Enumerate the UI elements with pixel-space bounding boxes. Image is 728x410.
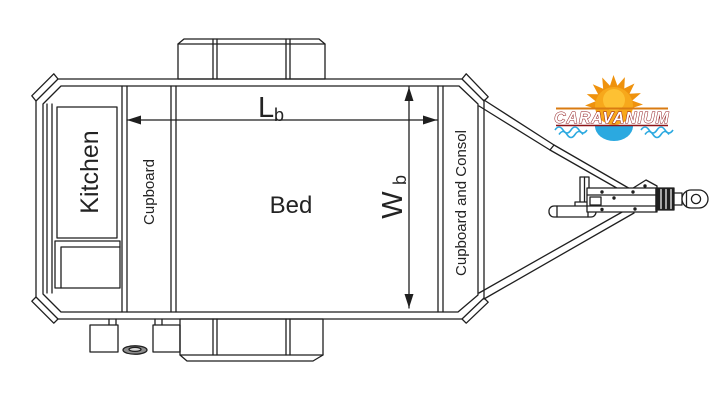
coupling-channel bbox=[587, 188, 656, 212]
arrowhead-up bbox=[405, 87, 414, 101]
dimension-length-label: L b bbox=[258, 92, 284, 125]
bed-label: Bed bbox=[270, 192, 313, 219]
cupboard-label: Cupboard bbox=[141, 159, 158, 225]
corner-bevel-bottom-right bbox=[462, 298, 488, 323]
support-box-left bbox=[90, 319, 118, 352]
wheelbox-top bbox=[178, 39, 325, 79]
corner-bevel-top-right bbox=[462, 74, 488, 101]
corner-bevel-bottom-left bbox=[32, 297, 58, 323]
brand-wordmark: CARAVANIUM bbox=[554, 110, 670, 127]
wheelbox-bottom bbox=[180, 319, 323, 361]
corner-bevel-top-left bbox=[32, 74, 58, 101]
bed-right-wall bbox=[438, 86, 443, 312]
tow-eye bbox=[674, 190, 708, 208]
length-symbol: L bbox=[258, 92, 274, 124]
hub-cap bbox=[123, 346, 147, 354]
caravan-floorplan-page: Kitchen Cupboard Bed Cupboard and Consol… bbox=[0, 0, 728, 410]
arrowhead-down bbox=[405, 294, 414, 308]
arrowhead-right bbox=[423, 116, 437, 125]
cupboard-consol-label: Cupboard and Consol bbox=[453, 130, 470, 276]
support-box-right bbox=[153, 319, 180, 352]
kitchen-label: Kitchen bbox=[76, 130, 104, 213]
arrowhead-left bbox=[127, 116, 141, 125]
dimension-width-label: W b bbox=[377, 175, 410, 219]
hitch-assembly bbox=[549, 177, 708, 217]
brand-logo: CARAVANIUM bbox=[554, 75, 673, 141]
kitchen-counter-box bbox=[55, 241, 120, 288]
width-subscript: b bbox=[390, 175, 410, 185]
bellows-cover bbox=[656, 188, 674, 210]
left-wall-layer-lines bbox=[47, 104, 52, 293]
water-half-disc-icon bbox=[595, 126, 633, 141]
floorplan-drawing: Kitchen Cupboard Bed Cupboard and Consol… bbox=[0, 0, 728, 410]
width-symbol: W bbox=[377, 191, 409, 219]
length-subscript: b bbox=[274, 105, 284, 125]
